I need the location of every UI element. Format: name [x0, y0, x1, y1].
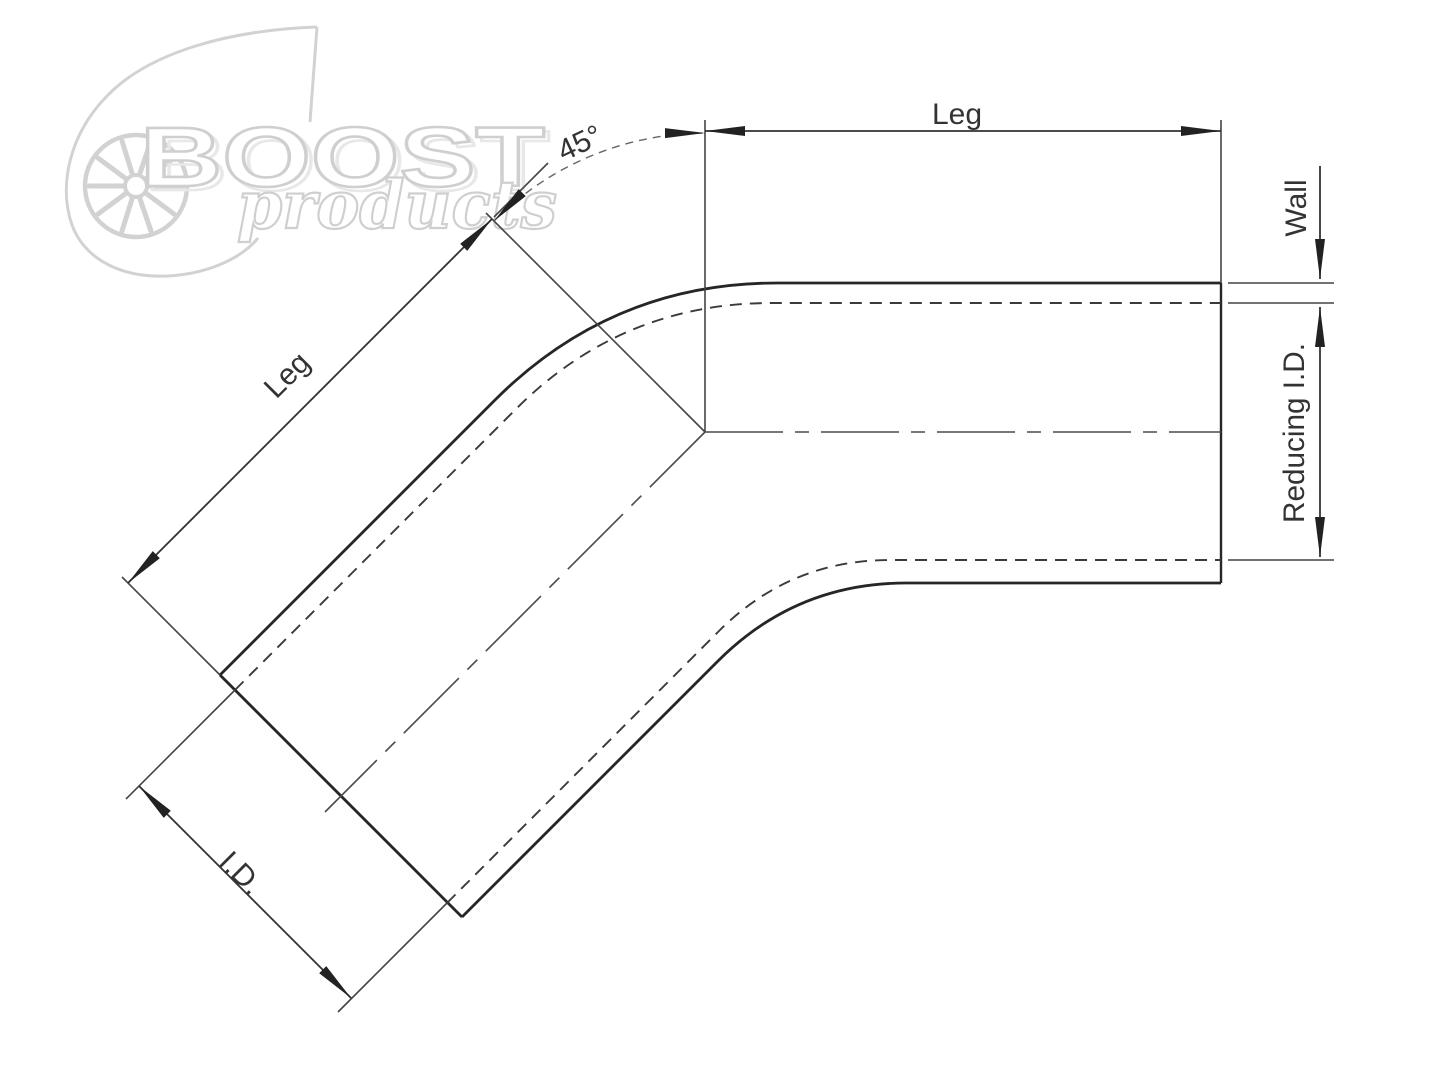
dimension-lines: [128, 131, 1320, 998]
inner-bore-hidden-lines: [235, 303, 1221, 903]
brand-tagline-text: products: [237, 166, 557, 244]
elbow-body-outline: [220, 283, 1221, 917]
id-label: I.D.: [213, 845, 269, 901]
angle-label: 45°: [552, 119, 607, 168]
extension-line-bend-plane-diagonal: [486, 213, 705, 432]
extension-line-id-lower: [338, 903, 447, 1012]
pipe-outer-bottom-edge: [462, 583, 1221, 917]
leg-top-label: Leg: [932, 98, 982, 131]
reducing-id-label: Reducing I.D.: [1278, 343, 1311, 523]
pipe-inner-top-edge: [235, 303, 1221, 690]
leg-diagonal-label: Leg: [258, 346, 317, 405]
extension-line-left-face: [122, 577, 220, 675]
centerlines: [325, 432, 1221, 812]
pipe-inner-bottom-edge: [447, 560, 1221, 903]
reducer-elbow-45-drawing: BOOST BOOST products: [0, 0, 1445, 1084]
extension-lines: [122, 120, 1334, 1012]
brand-watermark: BOOST BOOST products: [66, 27, 557, 276]
centerline-diagonal: [325, 432, 705, 812]
wall-label: Wall: [1280, 179, 1313, 236]
turbo-housing-flag-icon: [310, 27, 317, 122]
technical-drawing-page: BOOST BOOST products: [0, 0, 1445, 1084]
extension-line-id-upper: [126, 690, 235, 799]
